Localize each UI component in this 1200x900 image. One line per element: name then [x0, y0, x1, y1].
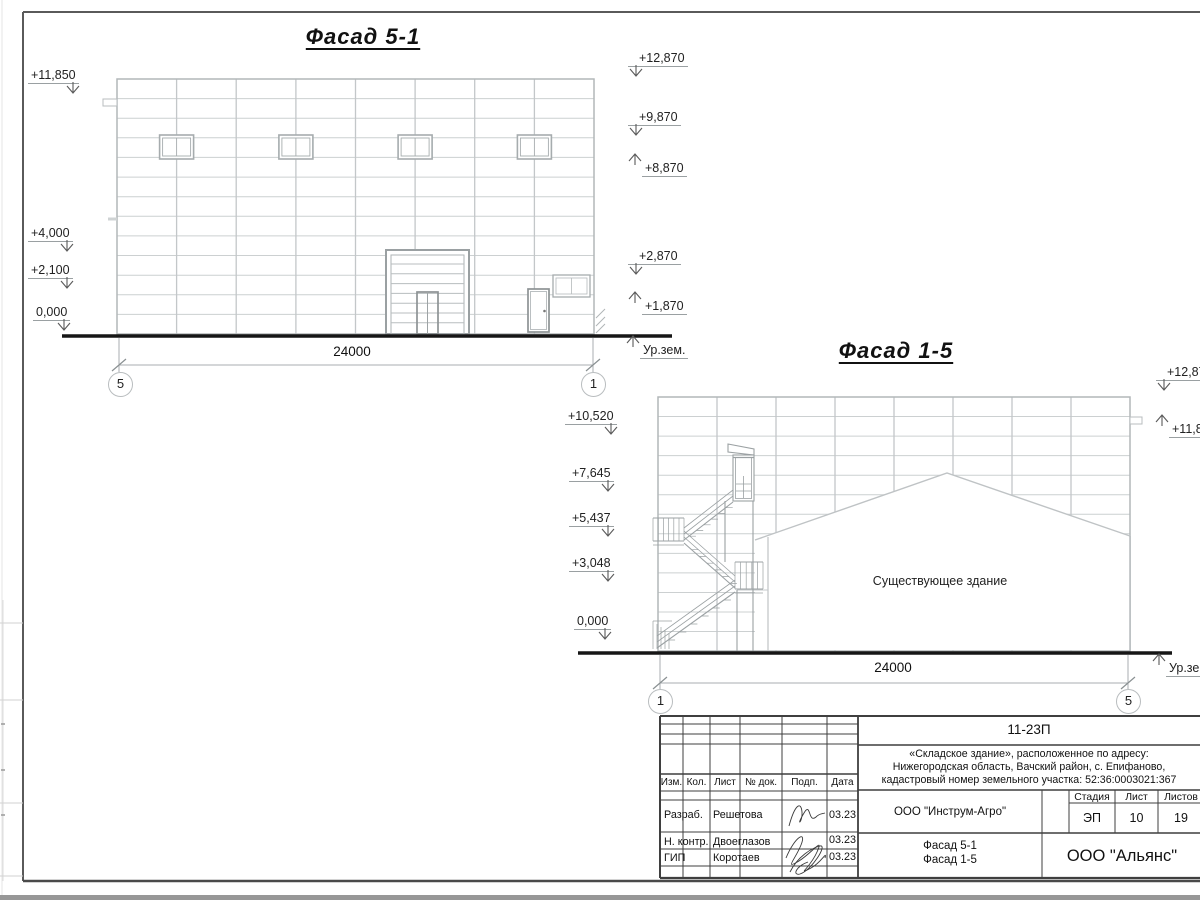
elevation-mark: +3,048: [569, 556, 614, 572]
elevation-arrow-down-icon: [629, 263, 643, 276]
elevation-arrow-down-icon: [629, 65, 643, 78]
row-name: Двоеглазов: [713, 836, 770, 848]
axis-marker-1: 1: [581, 372, 606, 397]
sheet-label: Лист: [1115, 792, 1158, 803]
stage-label: Стадия: [1069, 792, 1115, 803]
row-role: Разраб.: [664, 809, 703, 821]
project-line-2: Нижегородская область, Вачский район, с.…: [862, 761, 1196, 773]
elevation-mark: +11,850: [28, 68, 79, 84]
elevation-value: +1,870: [642, 299, 687, 315]
elevation-arrow-up-icon: [1155, 413, 1169, 426]
elevation-mark: +2,100: [28, 263, 73, 279]
col-header-podp: Подп.: [782, 777, 827, 788]
row-role: ГИП: [664, 852, 685, 864]
elevation-mark: +10,520: [565, 409, 617, 425]
facade-5-1-title: Фасад 5-1: [283, 24, 443, 50]
elevation-arrow-up-icon: [1152, 652, 1166, 665]
elevation-arrow-down-icon: [629, 124, 643, 137]
signatures: [786, 806, 825, 874]
elevation-arrow-down-icon: [598, 628, 612, 641]
org-name: ООО "Инструм-Агро": [860, 806, 1040, 818]
stage-value: ЭП: [1069, 811, 1115, 825]
facade-5-1-dimension-label: 24000: [297, 344, 407, 359]
elevation-mark: +9,870: [628, 110, 681, 126]
facade-1-5-title: Фасад 1-5: [816, 338, 976, 364]
elevation-arrow-down-icon: [1157, 379, 1171, 392]
elevation-mark: +2,870: [628, 249, 681, 265]
elevation-mark: 0,000: [33, 305, 70, 321]
elevation-arrow-up-icon: [628, 152, 642, 165]
col-header-data: Дата: [827, 777, 858, 788]
elevation-mark: +7,645: [569, 466, 614, 482]
small-window: [553, 275, 590, 297]
facade-1-5-drawing: [578, 397, 1172, 689]
row-date: 03.23: [827, 834, 858, 846]
existing-building-label: Существующее здание: [855, 574, 1025, 588]
elevation-mark: +5,437: [569, 511, 614, 527]
col-header-izm: Изм.: [660, 777, 683, 788]
drawing-name-1: Фасад 5-1: [860, 840, 1040, 852]
entrance-door: [528, 289, 549, 332]
door-canopy: [728, 444, 754, 455]
ground-level-label: Ур.зем.: [1152, 652, 1200, 677]
gate: [386, 250, 469, 334]
elevation-value: +8,870: [642, 161, 687, 177]
drawing-sheet: Фасад 5-1 24000 5 1 +11,850 +4,000 +2,10…: [0, 0, 1200, 900]
sheets-total: 19: [1158, 811, 1200, 825]
row-name: Коротаев: [713, 852, 760, 864]
elevation-mark: 0,000: [574, 614, 611, 630]
elevation-mark: +12,870: [628, 51, 688, 67]
axis-marker-5: 5: [108, 372, 133, 397]
axis-marker-1: 1: [648, 689, 673, 714]
axis-marker-5: 5: [1116, 689, 1141, 714]
col-header-list: Лист: [710, 777, 740, 788]
elevation-arrow-up-icon: [626, 334, 640, 347]
project-line-3: кадастровый номер земельного участка: 52…: [862, 774, 1196, 786]
elevation-arrow-down-icon: [60, 277, 74, 290]
row-name: Решетова: [713, 809, 763, 821]
doc-number: 11-23П: [860, 722, 1198, 737]
elevation-arrow-down-icon: [601, 570, 615, 583]
facade-5-1-drawing: [62, 79, 672, 372]
signature-reshetova: [789, 806, 825, 826]
elevation-mark: +1,870: [628, 290, 687, 315]
elevation-arrow-down-icon: [601, 480, 615, 493]
col-header-kol: Кол.: [683, 777, 710, 788]
elevation-mark: +11,850: [1155, 413, 1200, 438]
col-header-doc: № док.: [740, 777, 782, 788]
row-date: 03.23: [827, 851, 858, 863]
elevation-arrow-down-icon: [66, 82, 80, 95]
elevation-arrow-down-icon: [60, 240, 74, 253]
project-line-1: «Складское здание», расположенное по адр…: [862, 748, 1196, 760]
row-role: Н. контр.: [664, 836, 709, 848]
elevation-mark: +8,870: [628, 152, 687, 177]
elevation-arrow-down-icon: [601, 525, 615, 538]
elevation-arrow-up-icon: [628, 290, 642, 303]
ground-level-label: Ур.зем.: [626, 334, 688, 359]
scan-edge: [0, 895, 1200, 900]
company-name: ООО "Альянс": [1044, 847, 1200, 866]
elevation-arrow-down-icon: [604, 423, 618, 436]
row-date: 03.23: [827, 809, 858, 821]
wall-bracket: [103, 99, 117, 106]
elevation-value: +11,850: [1169, 422, 1200, 438]
elevation-mark: +4,000: [28, 226, 73, 242]
drawing-name-2: Фасад 1-5: [860, 854, 1040, 866]
sheet-number: 10: [1115, 811, 1158, 825]
elevation-mark: +12,870: [1156, 365, 1200, 381]
facade-1-5-dimension-label: 24000: [838, 660, 948, 675]
sheets-label: Листов: [1158, 792, 1200, 803]
elevation-arrow-down-icon: [57, 319, 71, 332]
